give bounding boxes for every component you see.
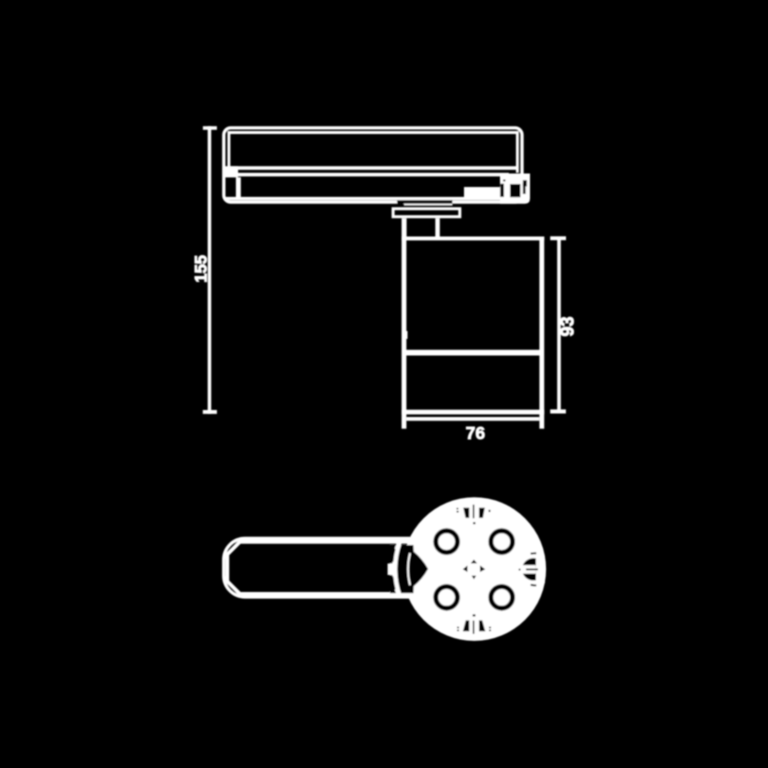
svg-text:93: 93 (558, 316, 578, 336)
svg-text:76: 76 (466, 423, 486, 443)
svg-text:155: 155 (193, 255, 211, 283)
